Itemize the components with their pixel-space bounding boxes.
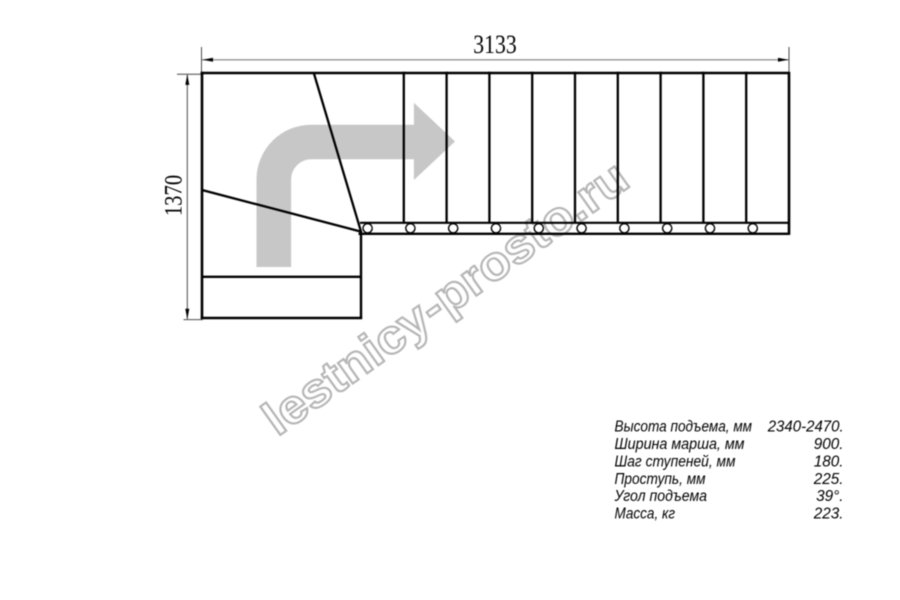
svg-text:Высота подъема, мм: Высота подъема, мм (615, 419, 753, 436)
svg-text:900.: 900. (814, 436, 844, 453)
svg-text:225.: 225. (813, 471, 844, 488)
svg-text:223.: 223. (813, 506, 844, 523)
svg-text:Угол подъема: Угол подъема (614, 488, 707, 505)
svg-text:1370: 1370 (159, 175, 188, 216)
svg-text:3133: 3133 (473, 30, 516, 60)
svg-text:Ширина марша, мм: Ширина марша, мм (615, 436, 745, 453)
svg-text:39°.: 39°. (816, 488, 843, 505)
svg-text:Проступь, мм: Проступь, мм (615, 471, 706, 488)
svg-text:2340-2470.: 2340-2470. (767, 419, 844, 436)
svg-text:Шаг ступеней, мм: Шаг ступеней, мм (615, 453, 736, 470)
svg-text:Масса, кг: Масса, кг (615, 506, 676, 523)
svg-text:180.: 180. (814, 453, 844, 470)
